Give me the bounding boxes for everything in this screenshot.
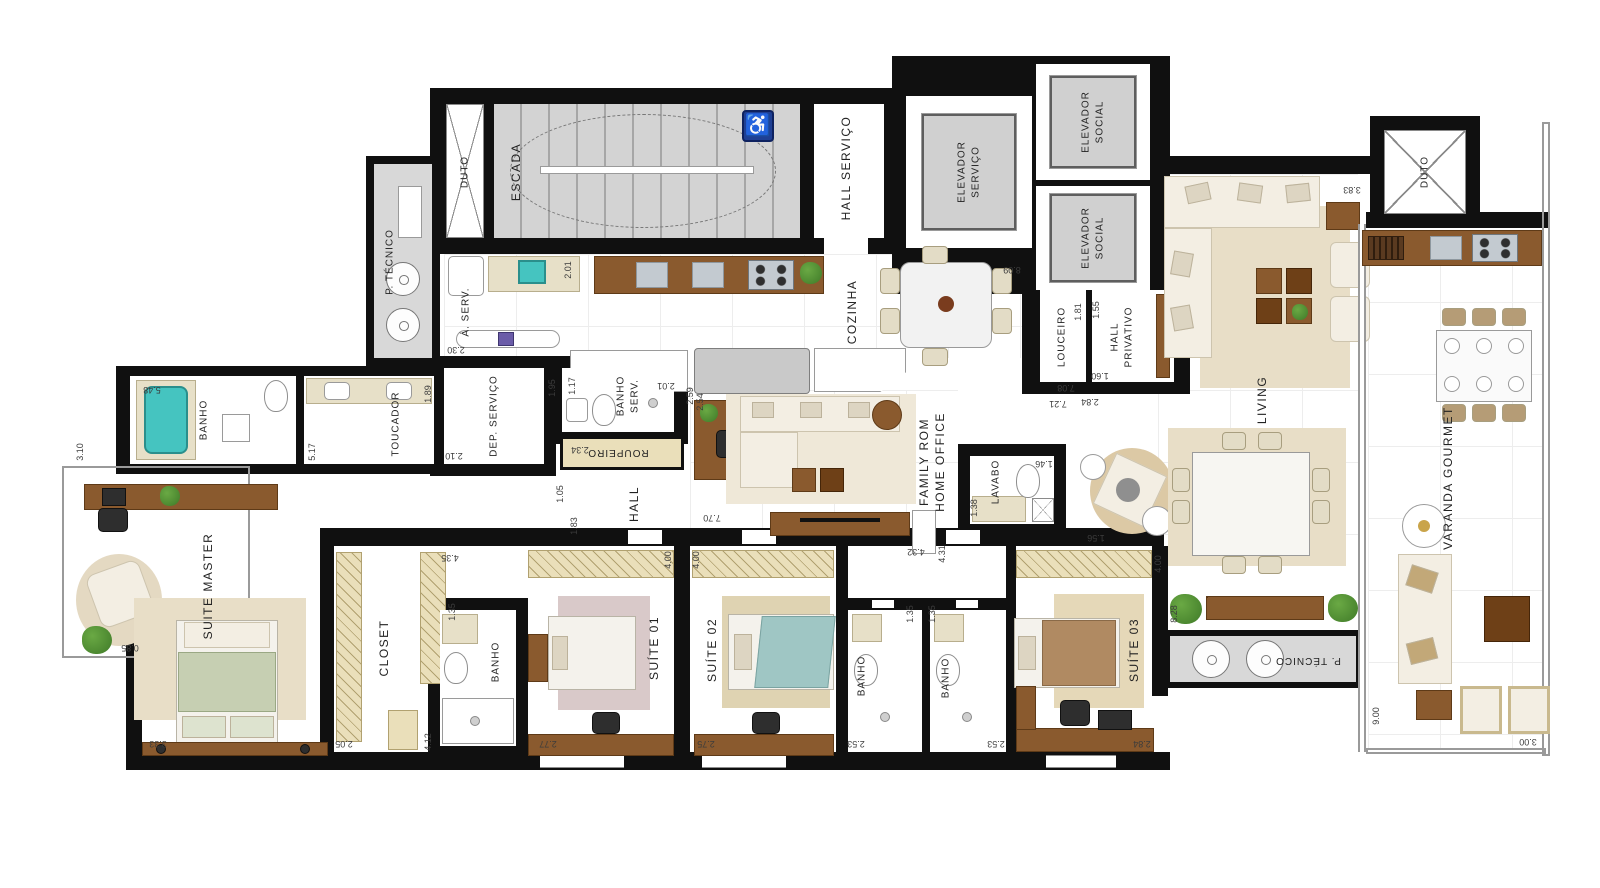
dim: 1.05 (555, 485, 565, 503)
varanda-outer-wall (1366, 748, 1546, 754)
chair (922, 246, 948, 264)
living-rug (1200, 206, 1350, 388)
door-gap (824, 238, 868, 254)
wall (1146, 156, 1386, 174)
plant (160, 486, 180, 506)
bed-pillow (182, 716, 226, 738)
dim: 1.95 (547, 379, 557, 397)
label-banho-serv: BANHO SERV. (615, 376, 642, 417)
toilet (592, 394, 616, 426)
armchair (1460, 686, 1502, 734)
chair (1472, 404, 1496, 422)
chair (1442, 308, 1466, 326)
armchair (1508, 686, 1550, 734)
dim: 8.28 (1169, 605, 1179, 623)
bed-foot-bench (184, 622, 270, 648)
dim: 7.08 (1057, 383, 1075, 393)
dim: 9.00 (1371, 707, 1381, 725)
shower-head (962, 712, 972, 722)
table-center (1418, 520, 1430, 532)
plate (1444, 338, 1460, 354)
wall (1366, 212, 1548, 228)
stair-rail (540, 166, 754, 174)
wall (430, 88, 898, 104)
coffee-table (1256, 268, 1282, 294)
dim: 1.89 (423, 385, 433, 403)
bathtub (144, 386, 188, 454)
vanity (934, 614, 964, 642)
dim: 3.00 (1519, 737, 1537, 747)
sofa-pillow (848, 402, 870, 418)
sofa-pillow (800, 402, 822, 418)
label-toucador: TOUCADOR (389, 391, 403, 456)
dim: 5.17 (307, 443, 317, 461)
dim: 7.21 (1049, 399, 1067, 409)
dim: 5.48 (143, 385, 161, 395)
sofa-pillow (1237, 182, 1263, 203)
dim: 1.83 (569, 517, 579, 535)
dim: 8.09 (1003, 265, 1021, 275)
kitchen-cabinet (814, 348, 906, 392)
chair (992, 308, 1012, 334)
dim: 2.10 (445, 451, 463, 461)
chair (1172, 468, 1190, 492)
headboard (528, 634, 548, 682)
window (540, 755, 624, 768)
coffee-table (1256, 298, 1282, 324)
label-p-tecnico-bottom: P. TÉCNICO (1275, 653, 1341, 667)
label-banho-master: BANHO (197, 400, 211, 441)
sink (566, 398, 588, 422)
dim: 2.59 (685, 387, 695, 405)
label-suite-master: SUITE MASTER (200, 533, 216, 640)
kitchen-sink (692, 262, 724, 288)
glass-wall (1358, 224, 1366, 752)
label-hall-servico: HALL SERVIÇO (838, 116, 854, 221)
sofa-pillow (752, 402, 774, 418)
wall (674, 546, 690, 754)
sconce (300, 744, 310, 754)
side-table (1326, 202, 1360, 230)
centerpiece (938, 296, 954, 312)
closet-bench (388, 710, 418, 750)
dim: 1.35 (927, 605, 937, 623)
chair (1472, 308, 1496, 326)
dim: 4.32 (907, 547, 925, 557)
dim: 3.33 (149, 739, 167, 749)
label-hall-privativo: HALL PRIVATIVO (1109, 307, 1136, 368)
wardrobe (1016, 550, 1152, 578)
bed-duvet (178, 652, 276, 712)
label-lavabo: LAVABO (989, 460, 1003, 505)
kitchen-sink (636, 262, 668, 288)
bookshelf (1098, 710, 1132, 730)
plate (1508, 376, 1524, 392)
chair (1502, 308, 1526, 326)
tv-console (770, 512, 910, 536)
chair (1222, 556, 1246, 574)
chair (1502, 404, 1526, 422)
window (702, 755, 786, 768)
plant (1292, 304, 1308, 320)
floor-plan: ♿ (0, 0, 1600, 888)
dim: 4.12 (423, 733, 433, 751)
gourmet-cooktop (1472, 234, 1518, 262)
dim: 3.10 (75, 443, 85, 461)
label-dep-servico: DEP. SERVIÇO (487, 375, 501, 457)
dim: 4.00 (1153, 555, 1163, 573)
sink (324, 382, 350, 400)
label-family-room: FAMILY ROM HOME OFFICE (916, 412, 948, 512)
label-cozinha: COZINHA (844, 280, 860, 345)
equipment-fan (386, 308, 420, 342)
dim: 4.35 (441, 553, 459, 563)
dim: 1.38 (969, 499, 979, 517)
dim: 3.83 (1343, 185, 1361, 195)
dim: 2.77 (539, 739, 557, 749)
label-banho-suite01: BANHO (489, 642, 503, 683)
dining-table (1192, 452, 1310, 556)
tv (800, 518, 880, 522)
dim: 1.46 (1035, 459, 1053, 469)
condenser-fan (1192, 640, 1230, 678)
shower-tray (222, 414, 250, 442)
square-table (1484, 596, 1530, 642)
dim: 4.31 (937, 545, 947, 563)
label-escada: ESCADA (508, 143, 524, 201)
door-gap (946, 530, 980, 544)
coffee-table (792, 468, 816, 492)
label-duto-top-left: DUTO (458, 156, 472, 188)
side-table (872, 400, 902, 430)
living-sofa-left (1164, 228, 1212, 358)
chair (1312, 468, 1330, 492)
laundry-sink (518, 260, 546, 284)
dim: 2.01 (657, 381, 675, 391)
label-duto-top-right: DUTO (1418, 156, 1432, 188)
desk (694, 734, 834, 756)
twin-baths-top-wall (836, 598, 1014, 610)
toilet (444, 652, 468, 684)
label-suite-02: SUÍTE 02 (704, 618, 720, 682)
bed-pillow (734, 634, 752, 670)
side-table (1080, 454, 1106, 480)
dim: 2.84 (1133, 739, 1151, 749)
gourmet-sink (1430, 236, 1462, 260)
plant (82, 626, 112, 654)
desk-chair (752, 712, 780, 734)
dim: 2.53 (987, 739, 1005, 749)
dim: 4.00 (663, 551, 673, 569)
coffee-table (1286, 268, 1312, 294)
dim: 1.35 (905, 605, 915, 623)
dim: 7.70 (703, 513, 721, 523)
label-louceiro: LOUCEIRO (1055, 307, 1069, 367)
equipment-box (398, 186, 422, 238)
plate (1444, 376, 1460, 392)
label-roupeiro: ROUPEIRO (587, 445, 648, 459)
living-sideboard (1206, 596, 1324, 620)
label-elevador-social-2: ELEVADOR SOCIAL (1080, 207, 1107, 269)
dim: 1.81 (1073, 303, 1083, 321)
dim: 2.05 (335, 739, 353, 749)
chair (1258, 432, 1282, 450)
dim: 4.00 (691, 551, 701, 569)
window (1046, 755, 1116, 768)
bed-pillow (552, 636, 568, 670)
dim: 1.55 (1091, 301, 1101, 319)
label-a-serv: Á. SERV. (459, 287, 473, 336)
wardrobe (528, 550, 674, 578)
family-sofa-chaise (740, 432, 798, 488)
shaft (1032, 498, 1054, 522)
wall (836, 546, 848, 754)
label-living: LIVING (1254, 376, 1270, 424)
dim: 2.01 (563, 261, 573, 279)
vanity (852, 614, 882, 642)
wardrobe (692, 550, 834, 578)
label-elevador-servico: ELEVADOR SERVIÇO (956, 141, 983, 203)
wall (922, 610, 930, 754)
label-suite-03: SUÍTE 03 (1126, 618, 1142, 682)
wall (484, 104, 494, 238)
desk-chair (1060, 700, 1090, 726)
bed-pillow (1018, 636, 1036, 670)
chair (880, 308, 900, 334)
toilet (1016, 464, 1040, 498)
door-gap (956, 600, 978, 608)
printer (102, 488, 126, 506)
closet-left-wall (320, 528, 334, 754)
coffee-table (1416, 690, 1452, 720)
coffee-table (820, 468, 844, 492)
label-banho-suite03: BANHO (939, 658, 953, 699)
chair (1312, 500, 1330, 524)
label-banho-suite02: BANHO (855, 656, 869, 697)
wall (800, 96, 814, 238)
label-closet: CLOSET (376, 619, 392, 676)
dim: 2.75 (697, 739, 715, 749)
chair (880, 268, 900, 294)
shower-head (648, 398, 658, 408)
sofa-pillow (1285, 183, 1311, 203)
chair (1258, 556, 1282, 574)
label-suite-01: SUÍTE 01 (646, 616, 662, 680)
cooktop (748, 260, 794, 290)
plate (1476, 338, 1492, 354)
dim: 2.54 (695, 393, 705, 411)
plant (800, 262, 822, 284)
closet-wardrobe (336, 552, 362, 742)
label-varanda-gourmet: VARANDA GOURMET (1440, 406, 1456, 550)
dim: 2.53 (847, 739, 865, 749)
accessibility-icon: ♿ (742, 110, 774, 142)
varanda-outer-wall (1542, 122, 1550, 756)
chair (1172, 500, 1190, 524)
desk-return (1016, 686, 1036, 730)
desk-chair (98, 508, 128, 532)
chair (1222, 432, 1246, 450)
dim: 1.60 (1091, 371, 1109, 381)
chair (922, 348, 948, 366)
sideboard (1206, 596, 1208, 598)
bed-pillow (230, 716, 274, 738)
label-p-tecnico-top: P. TÉCNICO (383, 229, 397, 295)
label-hall: HALL (626, 486, 642, 522)
door-gap (872, 600, 894, 608)
label-elevador-social-1: ELEVADOR SOCIAL (1080, 91, 1107, 153)
iron (498, 332, 514, 346)
fridge (694, 348, 810, 394)
shower-head (880, 712, 890, 722)
bed-blanket (1042, 620, 1116, 686)
sofa-pillow (1170, 250, 1194, 277)
shower-head (470, 716, 480, 726)
grill (1368, 236, 1404, 260)
dim: 2.30 (447, 345, 465, 355)
dim: 0.85 (121, 643, 139, 653)
dim: 1.17 (567, 377, 577, 395)
door-gap (628, 530, 662, 544)
dim: 2.84 (1081, 397, 1099, 407)
nook-pillow (1116, 478, 1140, 502)
dim: 2.34 (571, 445, 589, 455)
toilet (264, 380, 288, 412)
dim: 1.56 (1087, 533, 1105, 543)
bed-blanket (754, 616, 836, 688)
sofa-pillow (1170, 304, 1194, 331)
plate (1476, 376, 1492, 392)
plate (1508, 338, 1524, 354)
dim: 1.35 (447, 603, 457, 621)
plant (1328, 594, 1358, 622)
desk-chair (592, 712, 620, 734)
